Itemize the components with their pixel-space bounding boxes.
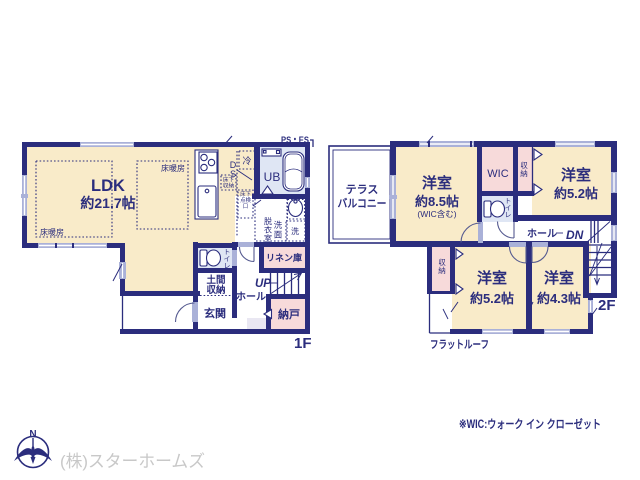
svg-text:イ: イ [224, 256, 231, 263]
svg-text:UP: UP [255, 278, 271, 290]
svg-text:洋室: 洋室 [544, 269, 574, 287]
svg-text:床暖房: 床暖房 [40, 227, 64, 237]
svg-text:納: 納 [438, 265, 446, 275]
svg-text:PS・ES: PS・ES [281, 135, 309, 146]
svg-text:約4.3帖: 約4.3帖 [537, 291, 581, 306]
svg-text:約21.7帖: 約21.7帖 [80, 195, 135, 211]
svg-text:(株)スターホームズ: (株)スターホームズ [60, 452, 205, 471]
svg-text:1F: 1F [294, 335, 312, 352]
svg-text:室: 室 [264, 233, 272, 243]
svg-text:洋室: 洋室 [477, 269, 507, 287]
svg-text:面: 面 [274, 230, 283, 240]
svg-text:(WIC含む): (WIC含む) [417, 209, 456, 219]
svg-text:ト: ト [224, 249, 231, 256]
svg-text:冷: 冷 [242, 155, 251, 166]
svg-text:イ: イ [505, 205, 512, 212]
svg-text:脱: 脱 [264, 216, 272, 226]
svg-text:約5.2帖: 約5.2帖 [554, 186, 598, 201]
svg-text:洋室: 洋室 [422, 174, 452, 192]
svg-text:レ: レ [224, 263, 231, 270]
svg-text:洋室: 洋室 [561, 166, 591, 184]
svg-text:テラス: テラス [346, 183, 379, 196]
svg-text:納: 納 [520, 168, 528, 178]
svg-text:約5.2帖: 約5.2帖 [470, 291, 514, 306]
svg-text:LDK: LDK [91, 177, 125, 195]
svg-text:※WIC:ウォーク イン クローゼット: ※WIC:ウォーク イン クローゼット [459, 417, 601, 431]
svg-text:ホール: ホール [527, 228, 557, 240]
svg-text:UB: UB [264, 170, 281, 184]
svg-text:バルコニー: バルコニー [338, 197, 387, 210]
svg-text:床下: 床下 [240, 190, 251, 198]
svg-text:ホール: ホール [236, 291, 266, 303]
svg-text:衣: 衣 [264, 225, 272, 235]
svg-text:床暖房: 床暖房 [161, 163, 185, 173]
svg-text:洗: 洗 [274, 220, 283, 230]
svg-text:洗: 洗 [291, 226, 299, 236]
svg-text:N: N [29, 429, 36, 440]
svg-text:点検: 点検 [240, 196, 251, 204]
svg-text:ト: ト [505, 198, 512, 205]
svg-text:収納: 収納 [206, 284, 225, 296]
svg-text:レ: レ [505, 212, 512, 219]
svg-text:リネン庫: リネン庫 [266, 252, 302, 263]
svg-text:口: 口 [243, 203, 248, 210]
svg-text:玄関: 玄関 [204, 306, 226, 320]
svg-text:収納: 収納 [223, 182, 235, 190]
svg-text:床下: 床下 [223, 176, 235, 184]
svg-text:WIC: WIC [487, 168, 508, 180]
svg-text:フラットルーフ: フラットルーフ [430, 338, 489, 351]
svg-text:DN: DN [566, 228, 584, 242]
svg-text:2F: 2F [598, 297, 616, 314]
svg-text:納戸: 納戸 [278, 307, 300, 321]
svg-text:約8.5帖: 約8.5帖 [415, 194, 459, 209]
